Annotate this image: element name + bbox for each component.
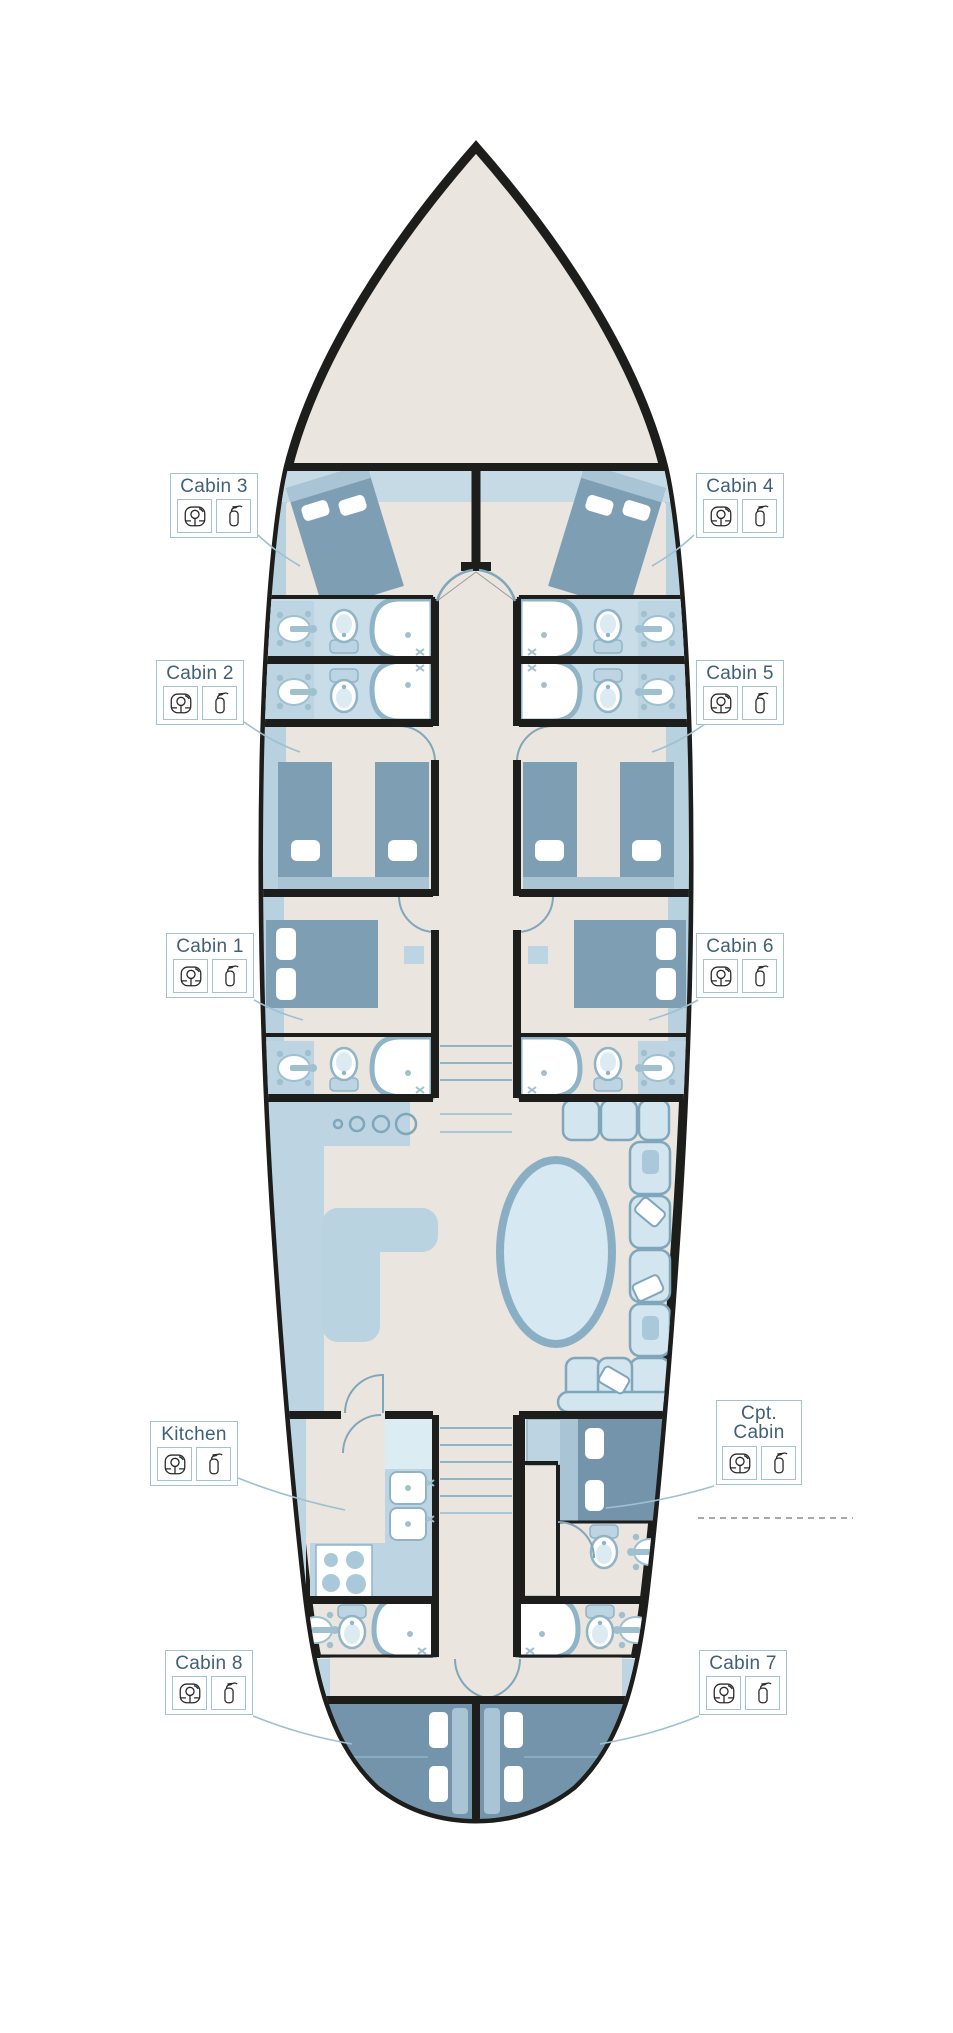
fire-extinguisher-icon	[742, 499, 777, 533]
label-cabin-1: Cabin 1	[166, 933, 254, 998]
life-jacket-icon	[163, 686, 198, 720]
label-title: Cabin 2	[159, 664, 241, 683]
fire-extinguisher-icon	[212, 959, 247, 993]
captain-bed	[560, 1417, 694, 1522]
life-jacket-icon	[173, 959, 208, 993]
fire-extinguisher-icon	[202, 686, 237, 720]
label-cabin-5: Cabin 5	[696, 660, 784, 725]
label-cabin-8: Cabin 8	[165, 1650, 253, 1715]
life-jacket-icon	[177, 499, 212, 533]
label-cabin-6: Cabin 6	[696, 933, 784, 998]
life-jacket-icon	[157, 1447, 192, 1481]
life-jacket-icon	[703, 959, 738, 993]
life-jacket-icon	[722, 1446, 757, 1480]
label-cpt-cabin: Cpt. Cabin	[716, 1400, 802, 1485]
life-jacket-icon	[703, 499, 738, 533]
fire-extinguisher-icon	[196, 1447, 231, 1481]
label-title: Cpt. Cabin	[719, 1404, 799, 1443]
label-cabin-4: Cabin 4	[696, 473, 784, 538]
label-title: Cabin 6	[699, 937, 781, 956]
label-kitchen: Kitchen	[150, 1421, 238, 1486]
fire-extinguisher-icon	[742, 959, 777, 993]
label-title: Cabin 1	[169, 937, 251, 956]
fire-extinguisher-icon	[742, 686, 777, 720]
label-title: Cabin 3	[173, 477, 255, 496]
salon-table	[500, 1160, 612, 1344]
fire-extinguisher-icon	[745, 1676, 780, 1710]
fire-extinguisher-icon	[761, 1446, 796, 1480]
label-cabin-2: Cabin 2	[156, 660, 244, 725]
deck-plan-page: Cabin 3 Cabin 4 Cabin 2 Cabin 5 Cabin 1 …	[0, 0, 953, 2033]
label-cabin-7: Cabin 7	[699, 1650, 787, 1715]
aft-corridor	[262, 1658, 690, 1702]
stern-cabin-beds	[290, 1700, 662, 1826]
label-title: Cabin 7	[702, 1654, 784, 1673]
fire-extinguisher-icon	[211, 1676, 246, 1710]
deck-plan-svg	[0, 0, 953, 2033]
label-title: Kitchen	[153, 1425, 235, 1444]
label-cabin-3: Cabin 3	[170, 473, 258, 538]
life-jacket-icon	[172, 1676, 207, 1710]
label-title: Cabin 5	[699, 664, 781, 683]
life-jacket-icon	[703, 686, 738, 720]
life-jacket-icon	[706, 1676, 741, 1710]
label-title: Cabin 4	[699, 477, 781, 496]
fire-extinguisher-icon	[216, 499, 251, 533]
label-title: Cabin 8	[168, 1654, 250, 1673]
